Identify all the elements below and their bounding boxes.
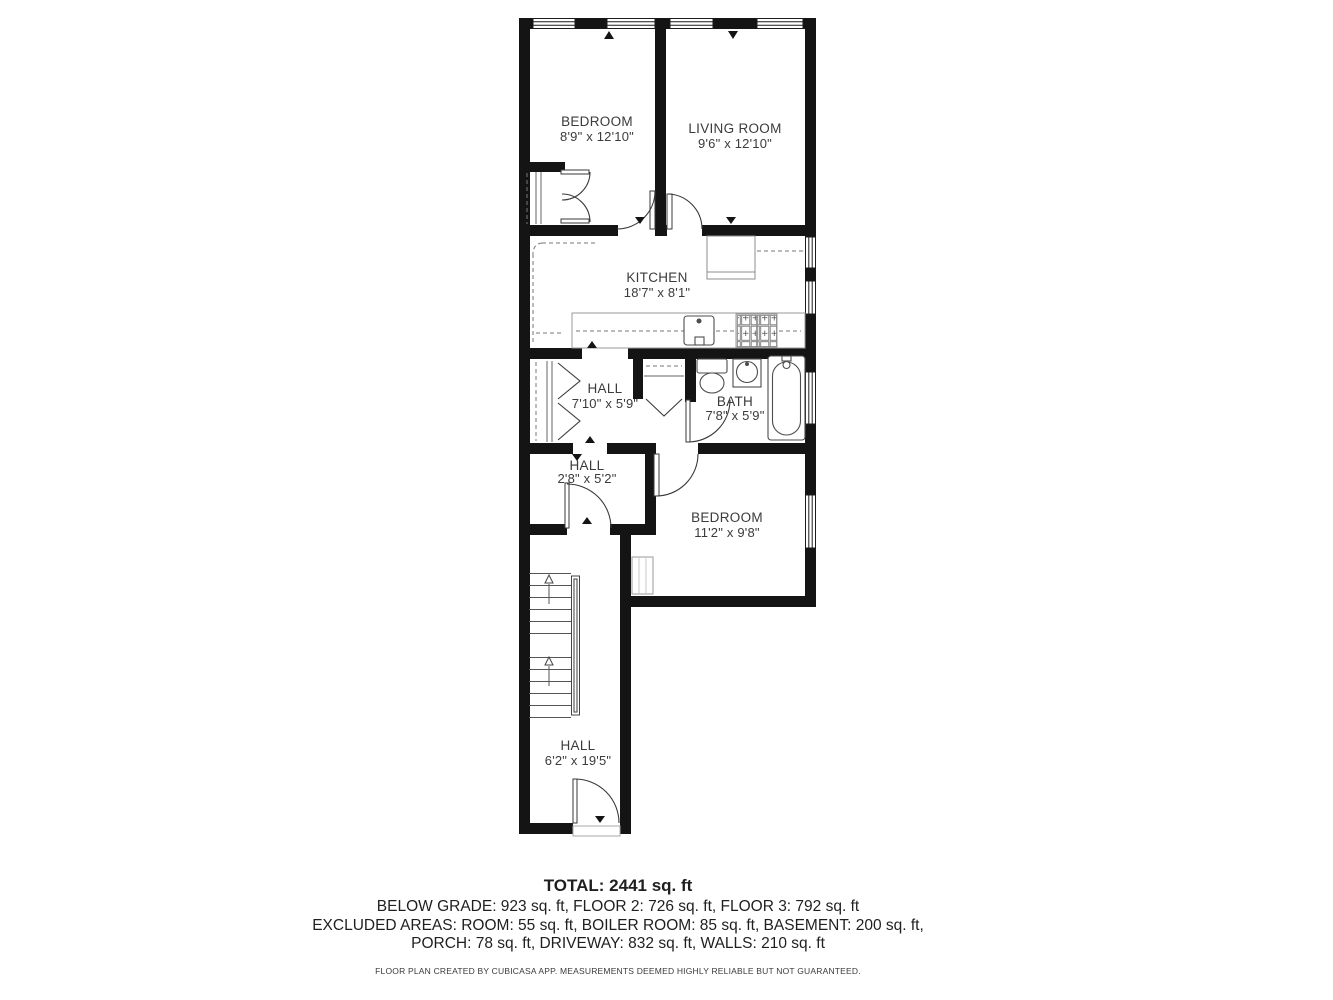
room-label-living-room: LIVING ROOM xyxy=(688,121,781,136)
toilet xyxy=(697,359,727,393)
room-label-bedroom-2: BEDROOM xyxy=(691,510,763,525)
stairs-up-arrow xyxy=(545,575,553,604)
hall-closet-right xyxy=(644,366,684,416)
kitchen-sink xyxy=(684,316,714,345)
room-label-hall-upper: HALL xyxy=(588,381,623,396)
room-label-bath: BATH xyxy=(717,394,753,409)
area-summary: TOTAL: 2441 sq. ft BELOW GRADE: 923 sq. … xyxy=(312,876,924,976)
total-area-text: TOTAL: 2441 sq. ft xyxy=(544,876,693,895)
kitchen-cabinet xyxy=(707,236,755,279)
stair-railing xyxy=(572,576,580,715)
floor-areas-text: BELOW GRADE: 923 sq. ft, FLOOR 2: 726 sq… xyxy=(377,898,860,915)
room-label-hall-stairs: HALL xyxy=(561,738,596,753)
bathtub xyxy=(768,356,805,440)
floor-plan-page: BEDROOM 8'9" x 12'10" LIVING ROOM 9'6" x… xyxy=(0,0,1333,1000)
room-label-bedroom-1: BEDROOM xyxy=(561,114,633,129)
room-dims-hall-stairs: 6'2" x 19'5" xyxy=(545,753,612,768)
entry-door xyxy=(573,779,620,836)
radiator xyxy=(632,557,653,594)
bedroom1-door xyxy=(617,191,655,229)
bathroom-sink xyxy=(733,359,761,387)
stove xyxy=(736,314,777,347)
floor-plan: BEDROOM 8'9" x 12'10" LIVING ROOM 9'6" x… xyxy=(0,0,1333,1000)
bedroom2-door xyxy=(654,454,698,496)
living-room-door xyxy=(667,194,702,229)
room-dims-living-room: 9'6" x 12'10" xyxy=(698,136,772,151)
room-label-kitchen: KITCHEN xyxy=(626,270,687,285)
room-dims-bedroom-1: 8'9" x 12'10" xyxy=(560,129,634,144)
room-dims-bedroom-2: 11'2" x 9'8" xyxy=(694,525,760,540)
room-dims-bath: 7'8" x 5'9" xyxy=(705,408,764,423)
disclaimer-text: FLOOR PLAN CREATED BY CUBICASA APP. MEAS… xyxy=(375,966,861,976)
room-dims-hall-small: 2'8" x 5'2" xyxy=(557,471,616,486)
excluded-areas-text-1: EXCLUDED AREAS: ROOM: 55 sq. ft, BOILER … xyxy=(312,917,924,934)
room-dims-hall-upper: 7'10" x 5'9" xyxy=(572,396,639,411)
excluded-areas-text-2: PORCH: 78 sq. ft, DRIVEWAY: 832 sq. ft, … xyxy=(411,935,825,952)
bedroom-closet xyxy=(527,170,590,224)
stairs xyxy=(529,574,580,718)
room-dims-kitchen: 18'7" x 8'1" xyxy=(624,285,691,300)
